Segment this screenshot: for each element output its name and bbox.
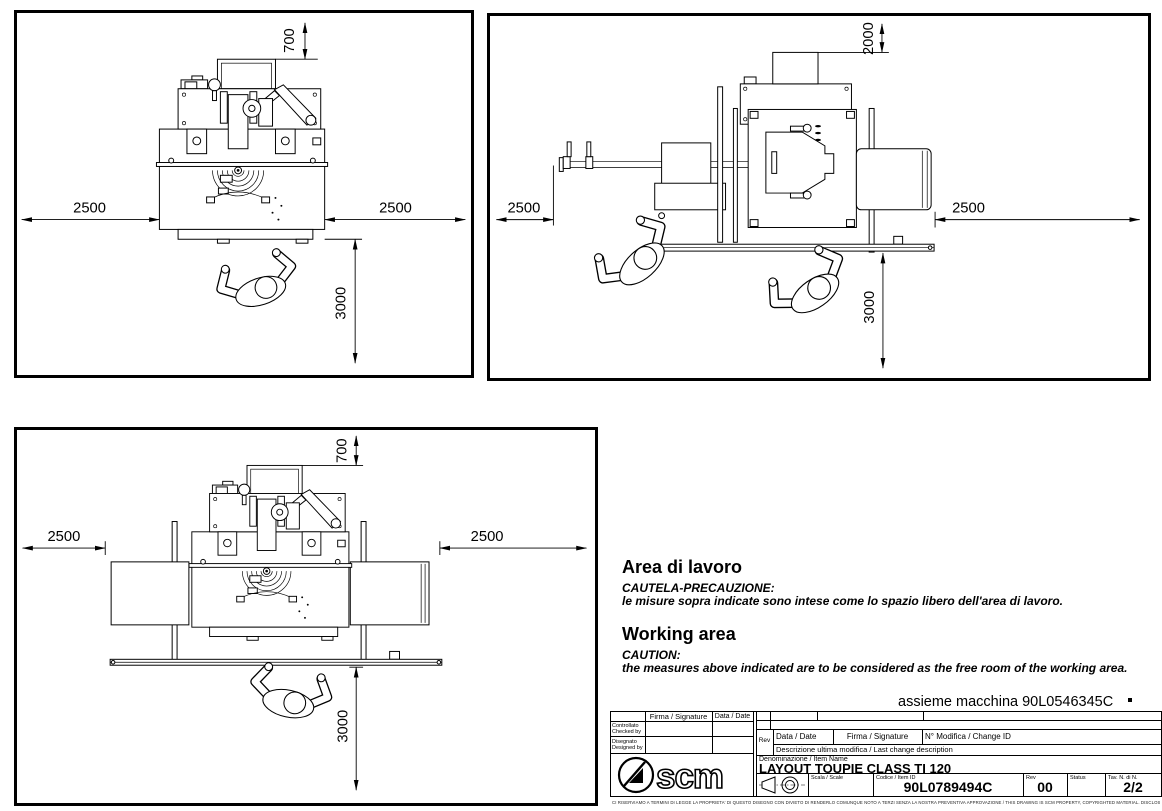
dimension-label: 2500 [952, 201, 985, 217]
machine-outline [156, 59, 327, 243]
legal-disclaimer: CI RISERVIAMO A TERMINI DI LEGGE LA PROP… [612, 800, 1160, 805]
item-name: LAYOUT TOUPIE CLASS TI 120 [759, 761, 951, 776]
item-id-value: 90L0789494C [873, 779, 1023, 795]
sheet-value: 2/2 [1105, 779, 1161, 795]
ref-dot [1128, 698, 1132, 702]
assembly-ref: assieme macchina 90L0546345C [898, 694, 1113, 710]
designed-by-label-en: Designed by [612, 745, 643, 752]
dimension-label: 2500 [73, 201, 106, 217]
title-block: assieme macchina 90L0546345C [610, 693, 1162, 797]
signature-header: Firma / Signature [645, 713, 712, 721]
rev-value: 00 [1023, 779, 1067, 795]
dimension-2500-left: 2500 [496, 166, 553, 226]
view-b-drawing: 2000 2500 2500 3000 [490, 16, 1148, 378]
operator-figure [249, 661, 332, 725]
projection-symbol-icon [759, 775, 805, 795]
dimension-2500-right: 2500 [325, 201, 466, 220]
dimension-700: 700 [302, 436, 363, 466]
operator-figure [214, 246, 300, 316]
dimension-label: 700 [282, 28, 298, 53]
working-area-notes: Area di lavoro CAUTELA-PRECAUZIONE: le m… [622, 556, 1162, 675]
dimension-label: 3000 [335, 710, 351, 743]
dimension-2000: 2000 [818, 22, 889, 55]
dimension-2500-right: 2500 [440, 529, 587, 555]
dimension-2500-right: 2500 [935, 201, 1140, 228]
dimension-label: 2500 [507, 201, 540, 217]
status-label: Status [1070, 775, 1086, 782]
operator-figure [762, 240, 855, 327]
view-c-frame: 700 2500 2500 3000 [14, 427, 598, 806]
dimension-700: 700 [275, 23, 317, 59]
dimension-3000: 3000 [325, 239, 362, 363]
view-a-drawing: 700 2500 2500 3000 [17, 13, 471, 375]
notes-english-title: Working area [622, 623, 1162, 645]
change-id-label: N° Modifica / Change ID [925, 732, 1011, 741]
notes-english-body: the measures above indicated are to be c… [622, 662, 1162, 675]
dimension-label: 2500 [471, 529, 504, 545]
change-date-label: Data / Date [776, 732, 816, 741]
machine-outline [110, 465, 442, 665]
dimension-label: 3000 [333, 287, 349, 320]
change-desc-label: Descrizione ultima modifica / Last chang… [776, 746, 953, 754]
change-signature-label: Firma / Signature [833, 732, 922, 741]
dimension-label: 2500 [47, 529, 80, 545]
dimension-label: 2000 [861, 22, 877, 55]
title-block-table: Firma / Signature Data / Date Controllat… [610, 711, 1162, 797]
dimension-label: 700 [334, 438, 350, 463]
notes-italian-body: le misure sopra indicate sono intese com… [622, 595, 1162, 608]
scm-logo-text: scm [656, 757, 723, 795]
view-b-frame: 2000 2500 2500 3000 [487, 13, 1151, 381]
date-header: Data / Date [712, 713, 753, 721]
checked-by-label-en: Checked by [612, 729, 641, 736]
scm-logo: scm [616, 755, 748, 795]
view-c-drawing: 700 2500 2500 3000 [17, 430, 595, 803]
operator-figure [588, 210, 681, 301]
dimension-label: 2500 [379, 201, 412, 217]
notes-italian-title: Area di lavoro [622, 556, 1162, 578]
view-a-frame: 700 2500 2500 3000 [14, 10, 474, 378]
dimension-label: 3000 [862, 291, 878, 324]
rev-row-label: Rev [756, 738, 773, 745]
dimension-3000: 3000 [862, 253, 883, 368]
dimension-2500-left: 2500 [22, 201, 160, 220]
dimension-2500-left: 2500 [23, 529, 106, 555]
scale-label: Scala / Scale [811, 775, 843, 782]
drawing-sheet: 700 2500 2500 3000 [0, 0, 1162, 811]
machine-outline [559, 52, 934, 252]
dimension-3000: 3000 [335, 667, 363, 790]
